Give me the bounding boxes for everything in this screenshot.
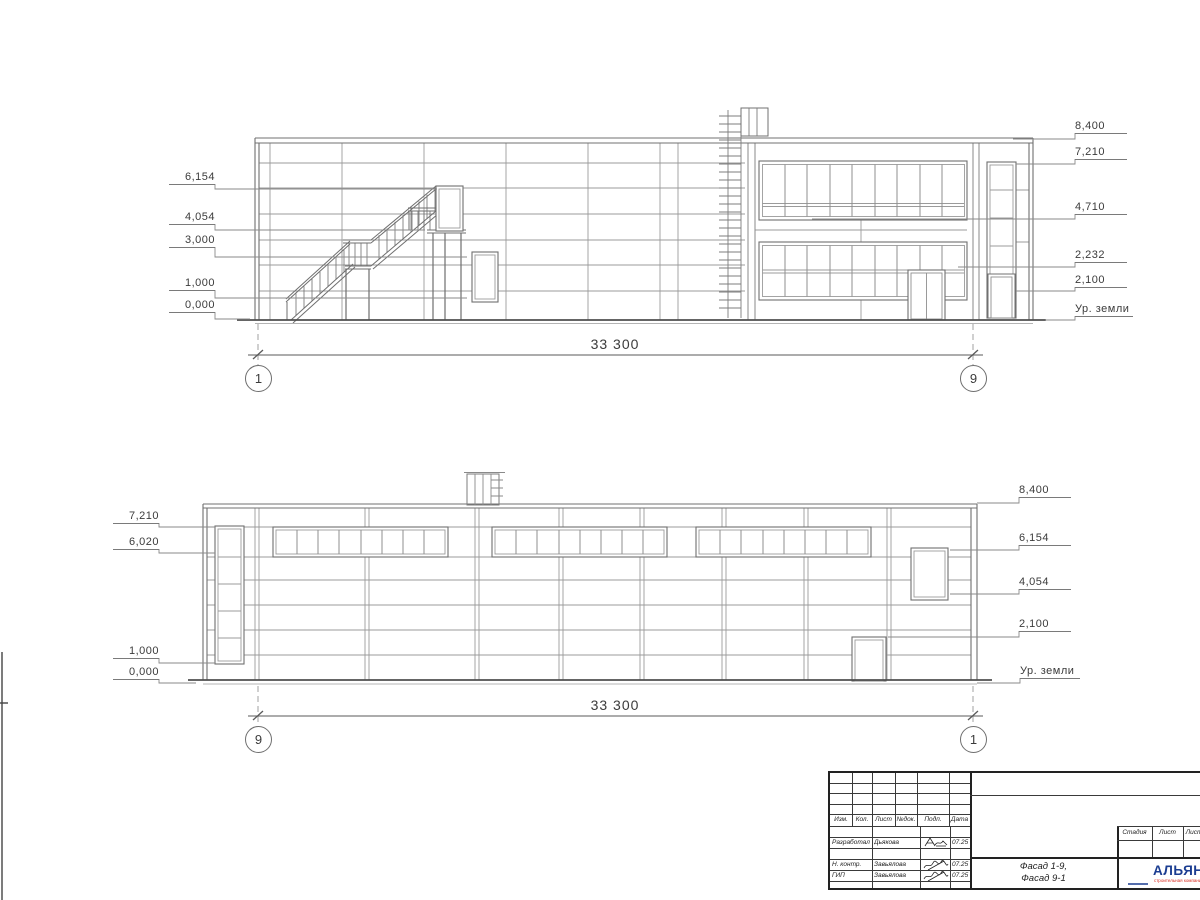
elevation-mark: 2,232 [1075, 249, 1127, 263]
wall-window-right [911, 548, 948, 600]
elevation-mark: 0,000 [169, 299, 215, 313]
axis-bubble: 1 [245, 365, 272, 392]
glazed-strip-right [987, 162, 1016, 318]
elevation-mark: 7,210 [1075, 146, 1127, 160]
facade-top-view [215, 108, 1075, 365]
single-door [852, 637, 886, 681]
dimension-text: 33 300 [580, 697, 650, 713]
doc-title-line2: Фасад 9-1 [970, 873, 1117, 885]
axis-bubble: 1 [960, 726, 987, 753]
tb-date: 07.25 [952, 872, 970, 879]
title-block: Изм. Кол. Лист №док. Подп. Дата Разработ… [828, 771, 1200, 890]
signature [922, 871, 950, 882]
rooftop-ladder-exit [464, 473, 505, 506]
tb-stage: Стадия [1117, 829, 1152, 836]
tb-col-data: Дата [949, 816, 970, 823]
axis-number: 9 [970, 371, 977, 386]
ground-level-label: Ур. земли [1075, 303, 1133, 317]
signature [922, 837, 950, 848]
elevation-mark: 4,054 [1019, 576, 1071, 590]
sheet-frame-fragment [0, 652, 8, 900]
dimension-text: 33 300 [580, 336, 650, 352]
elevation-mark: 4,710 [1075, 201, 1127, 215]
ground-line-bottom [188, 680, 992, 684]
tb-col-kol: Кол. [852, 816, 872, 823]
signature [922, 860, 950, 871]
axis-number: 9 [255, 732, 262, 747]
logo-subtext: строительная компания [1154, 878, 1200, 883]
ribbon-band-1 [273, 527, 448, 557]
tb-col-list: Лист [872, 816, 895, 823]
elevation-mark: 8,400 [1075, 120, 1127, 134]
logo-text: АЛЬЯНС [1153, 863, 1200, 878]
tb-date: 07.25 [952, 861, 970, 868]
elevation-mark: 6,154 [1019, 532, 1071, 546]
ribbon-band-2 [492, 527, 667, 557]
drawing-sheet: 6,154 4,054 3,000 1,000 0,000 8,400 7,21… [0, 0, 1200, 900]
ribbon-band-3 [696, 527, 871, 557]
elevation-mark: 1,000 [169, 277, 215, 291]
ground-level-label: Ур. земли [1020, 665, 1080, 679]
tb-role: ГИП [832, 872, 872, 879]
elevation-mark: 1,000 [113, 645, 159, 659]
elevation-mark: 0,000 [113, 666, 159, 680]
entrance-door-double [908, 270, 945, 320]
stair-top-door [436, 186, 463, 231]
doc-title-line1: Фасад 1-9, [970, 861, 1117, 873]
tb-col-ndok: №док. [895, 816, 917, 823]
elevation-mark: 8,400 [1019, 484, 1071, 498]
tb-role: Н. контр. [832, 861, 872, 868]
elevation-mark: 7,210 [113, 510, 159, 524]
tb-sheet: Лист [1152, 829, 1183, 836]
elevation-mark: 2,100 [1075, 274, 1127, 288]
logo-pyramid-icon [1127, 861, 1149, 885]
tb-date: 07.25 [952, 839, 970, 846]
glazed-strip-left [215, 526, 244, 664]
tb-col-izm: Изм. [830, 816, 852, 823]
axis-bubble: 9 [960, 365, 987, 392]
tb-name: Завьялова [874, 872, 919, 879]
facade-linework [0, 0, 1200, 900]
ground-line-top [237, 320, 1046, 324]
elevation-mark: 6,020 [113, 536, 159, 550]
tb-name: Дьякова [874, 839, 919, 846]
glazing-band-upper [759, 161, 967, 220]
doc-title: Фасад 1-9, Фасад 9-1 [970, 861, 1117, 885]
company-logo: АЛЬЯНС строительная компания [1117, 857, 1200, 888]
tb-col-podp: Подп. [917, 816, 949, 823]
elevation-mark: 6,154 [169, 171, 215, 185]
elevation-mark: 2,100 [1019, 618, 1071, 632]
elevation-mark: 3,000 [169, 234, 215, 248]
facade-bottom-view [159, 473, 1020, 727]
elevation-mark: 4,054 [169, 211, 215, 225]
axis-number: 1 [255, 371, 262, 386]
tb-role: Разработал [832, 839, 872, 846]
axis-bubble: 9 [245, 726, 272, 753]
tb-name: Завьялова [874, 861, 919, 868]
tb-sheets: Листов [1183, 829, 1200, 836]
wall-window [472, 252, 498, 302]
axis-number: 1 [970, 732, 977, 747]
